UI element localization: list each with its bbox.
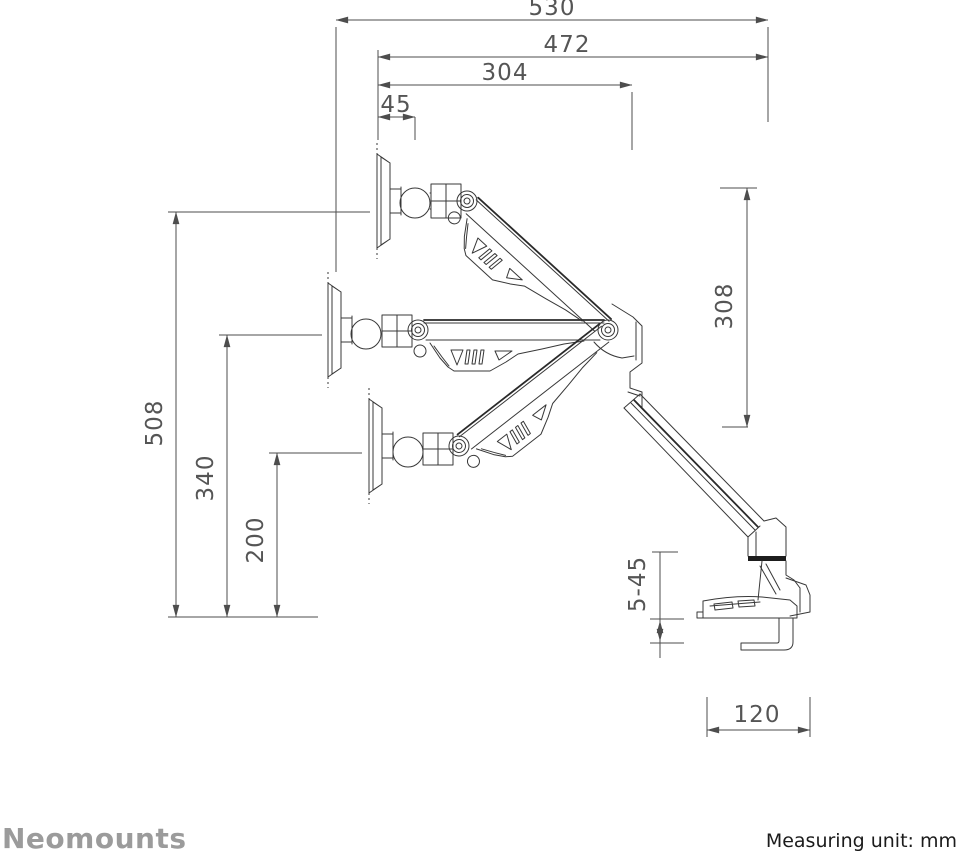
- dim-label-200: 200: [243, 517, 269, 564]
- dim-label-530: 530: [529, 0, 576, 21]
- measuring-unit-label: Measuring unit: mm: [766, 830, 957, 852]
- dimension-340: 340: [193, 335, 322, 617]
- lower-arm-link: [445, 324, 631, 485]
- dimension-472: 472: [378, 32, 768, 140]
- ball-joint: [400, 188, 430, 218]
- clamp-lever-band: [748, 556, 786, 561]
- ball-joint: [351, 319, 381, 349]
- dim-label-308: 308: [712, 283, 738, 330]
- desk-clamp: [697, 561, 810, 650]
- brand-logo: Neomounts: [2, 822, 187, 853]
- vesa-plate: [328, 272, 412, 388]
- pivot-joint: [445, 432, 473, 460]
- riser-column: [748, 518, 786, 561]
- dimension-120: 120: [707, 697, 810, 737]
- dimension-304: 304: [378, 60, 632, 150]
- dimension-45: 45: [378, 92, 415, 140]
- dimension-200: 200: [243, 453, 362, 617]
- arm-position-middle: [328, 272, 604, 388]
- vesa-plate: [369, 388, 453, 504]
- middle-arm-link: [408, 320, 604, 371]
- dim-label-5-45: 5-45: [625, 556, 651, 612]
- dim-label-472: 472: [544, 32, 591, 58]
- dim-label-304: 304: [482, 60, 529, 86]
- drawing-page: 530 472 304 45 508 340: [0, 0, 960, 853]
- dim-label-340: 340: [193, 455, 219, 502]
- dim-label-120: 120: [734, 702, 781, 728]
- static-arm: [624, 392, 764, 537]
- dimension-5-45: 5-45: [625, 552, 684, 658]
- ball-joint: [393, 437, 423, 467]
- pivot-joint: [453, 187, 481, 215]
- upper-arm-link: [432, 187, 611, 357]
- dim-label-508: 508: [142, 400, 168, 447]
- technical-drawing: 530 472 304 45 508 340: [0, 0, 960, 853]
- dimension-308: 308: [712, 188, 757, 427]
- dim-label-45: 45: [380, 92, 411, 118]
- vesa-plate: [377, 143, 461, 259]
- clamp-hook: [741, 618, 793, 650]
